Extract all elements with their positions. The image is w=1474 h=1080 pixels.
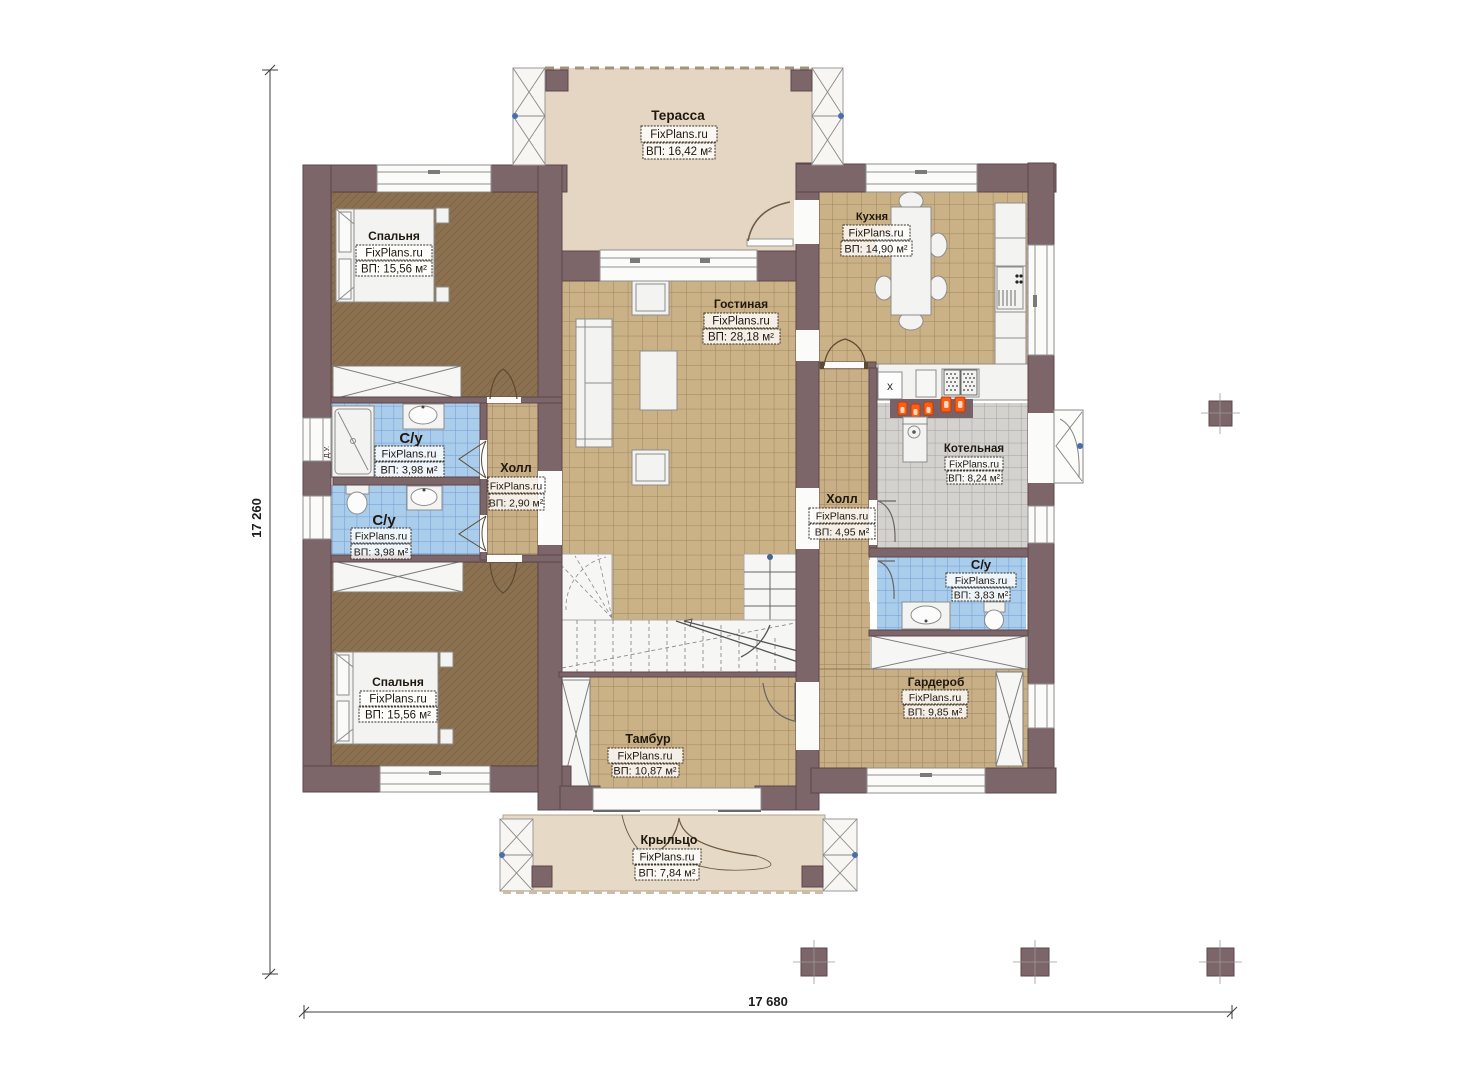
svg-text:Терасса: Терасса [651,108,705,123]
svg-text:ВП: 3,98 м²: ВП: 3,98 м² [354,547,409,559]
svg-text:ВП: 10,87 м²: ВП: 10,87 м² [613,766,677,778]
svg-text:FixPlans.ru: FixPlans.ru [650,129,708,141]
svg-text:ВП: 3,83 м²: ВП: 3,83 м² [954,590,1009,602]
svg-text:FixPlans.ru: FixPlans.ru [355,531,408,543]
svg-text:С/у: С/у [399,430,423,447]
svg-text:ВП: 3,98 м²: ВП: 3,98 м² [380,465,437,477]
svg-text:Д.У.: Д.У. [324,446,331,458]
svg-text:FixPlans.ru: FixPlans.ru [381,449,436,461]
svg-text:Тамбур: Тамбур [625,732,671,746]
svg-text:Кухня: Кухня [856,211,888,223]
svg-text:17 260: 17 260 [249,498,264,538]
svg-text:FixPlans.ru: FixPlans.ru [369,694,427,706]
svg-text:FixPlans.ru: FixPlans.ru [909,692,962,704]
svg-text:ВП: 14,90 м²: ВП: 14,90 м² [844,244,908,256]
svg-text:ВП: 15,56 м²: ВП: 15,56 м² [361,264,427,276]
svg-text:FixPlans.ru: FixPlans.ru [949,460,999,471]
svg-text:FixPlans.ru: FixPlans.ru [617,751,672,763]
svg-text:Спальня: Спальня [368,229,420,243]
svg-text:ВП: 2,90 м²: ВП: 2,90 м² [489,498,544,510]
svg-text:ВП: 8,24 м²: ВП: 8,24 м² [948,474,1001,485]
svg-text:Крыльцо: Крыльцо [641,833,698,847]
svg-text:Гостиная: Гостиная [714,297,768,311]
svg-text:Котельная: Котельная [944,443,1004,455]
svg-text:FixPlans.ru: FixPlans.ru [848,228,903,240]
svg-text:ВП: 15,56 м²: ВП: 15,56 м² [365,710,431,722]
svg-text:С/у: С/у [971,557,992,572]
svg-text:FixPlans.ru: FixPlans.ru [490,481,543,493]
svg-text:FixPlans.ru: FixPlans.ru [816,511,869,523]
svg-text:FixPlans.ru: FixPlans.ru [955,575,1008,587]
svg-text:ВП: 7,84 м²: ВП: 7,84 м² [638,868,695,880]
svg-text:FixPlans.ru: FixPlans.ru [712,316,770,328]
svg-text:ВП: 9,85 м²: ВП: 9,85 м² [908,707,963,719]
svg-text:ВП: 28,18 м²: ВП: 28,18 м² [708,332,774,344]
svg-text:Спальня: Спальня [372,675,424,689]
svg-text:С/у: С/у [372,512,396,529]
svg-text:FixPlans.ru: FixPlans.ru [365,248,423,260]
svg-text:ВП: 4,95 м²: ВП: 4,95 м² [815,527,870,539]
svg-text:ВП: 16,42 м²: ВП: 16,42 м² [646,146,712,158]
svg-text:17 680: 17 680 [748,994,788,1009]
svg-text:Гардероб: Гардероб [908,675,965,689]
svg-text:Холл: Холл [500,461,531,475]
svg-text:x: x [887,379,893,393]
svg-text:Холл: Холл [826,492,857,506]
svg-text:FixPlans.ru: FixPlans.ru [639,852,694,864]
